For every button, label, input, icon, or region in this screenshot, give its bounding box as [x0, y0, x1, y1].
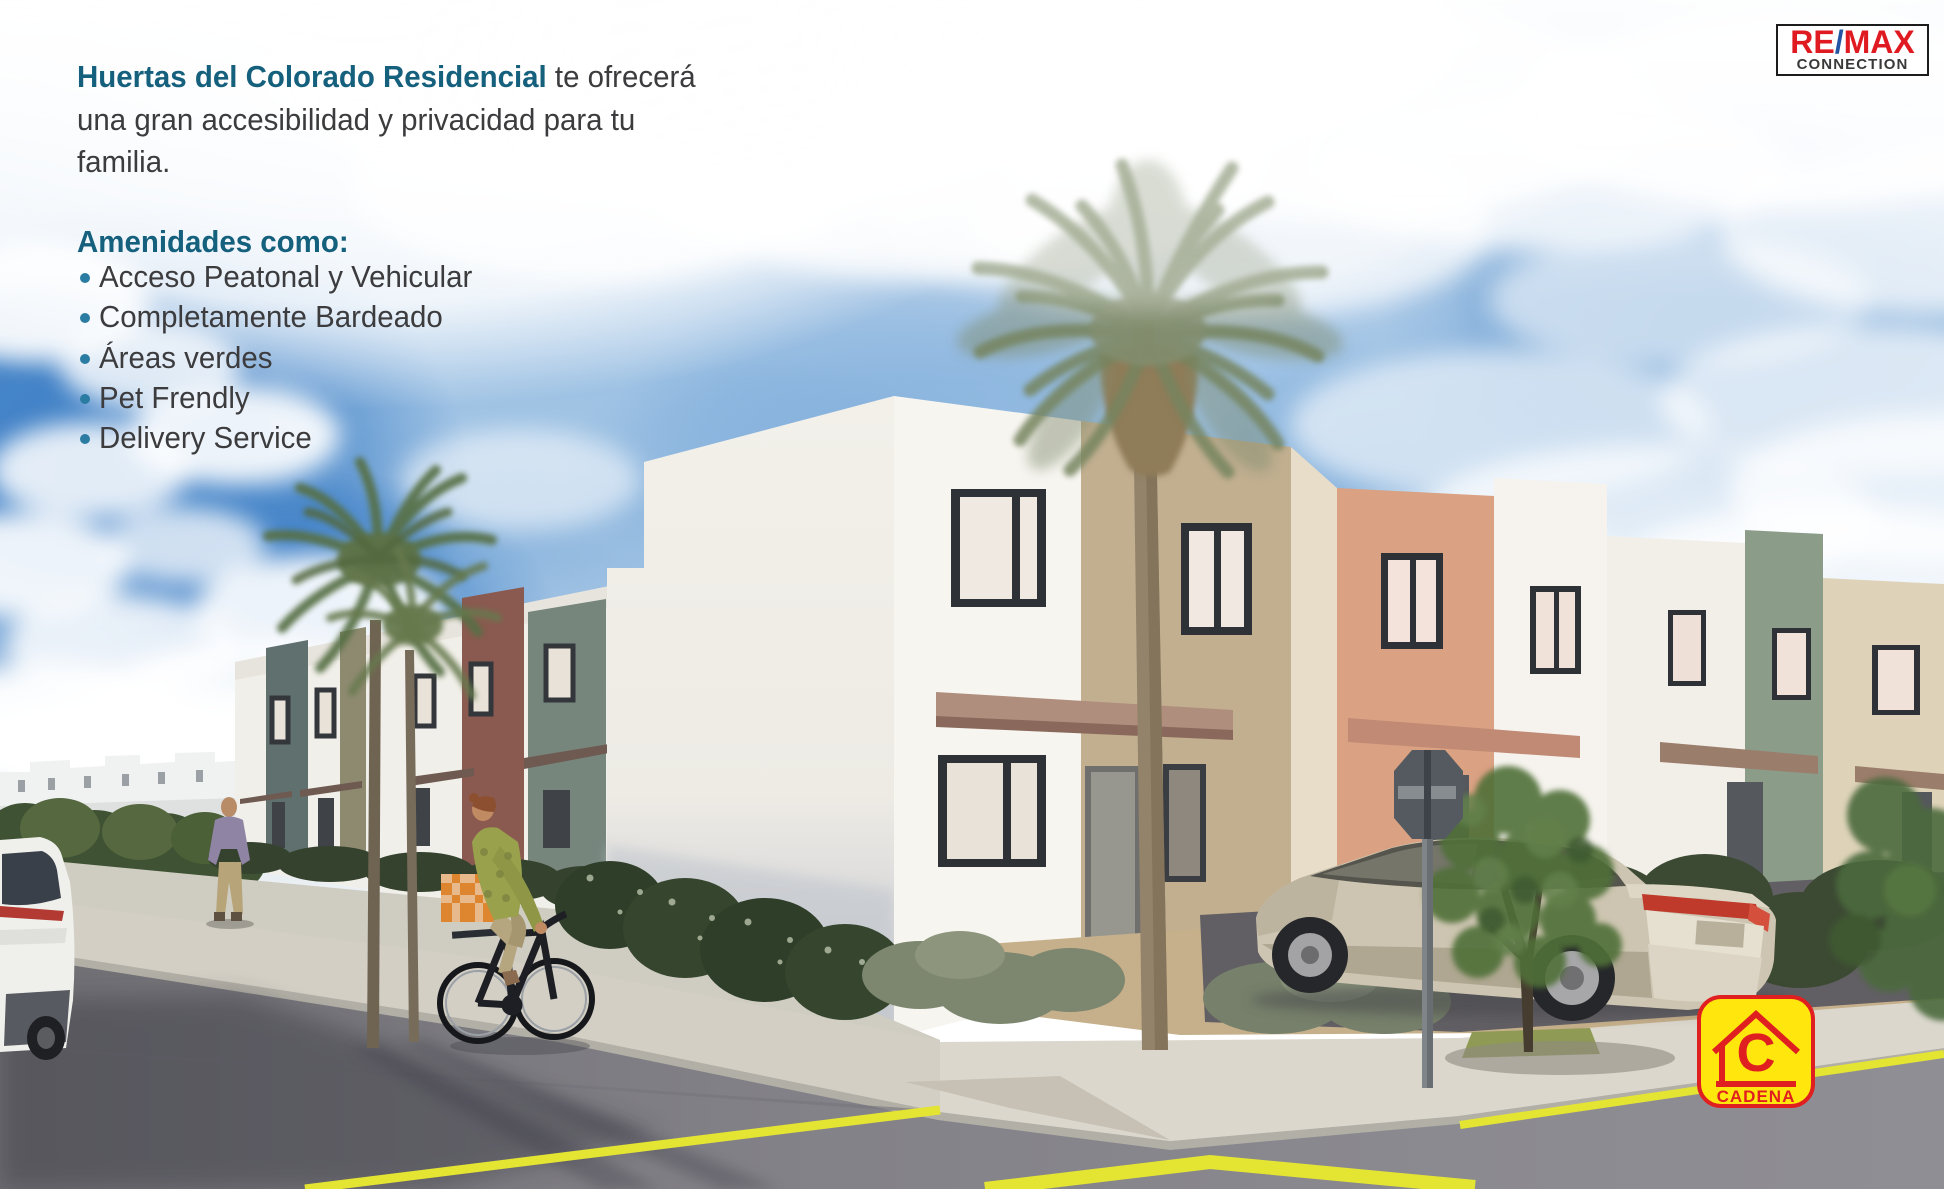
- svg-text:C: C: [1737, 1023, 1776, 1083]
- svg-text:CADENA: CADENA: [1717, 1087, 1796, 1106]
